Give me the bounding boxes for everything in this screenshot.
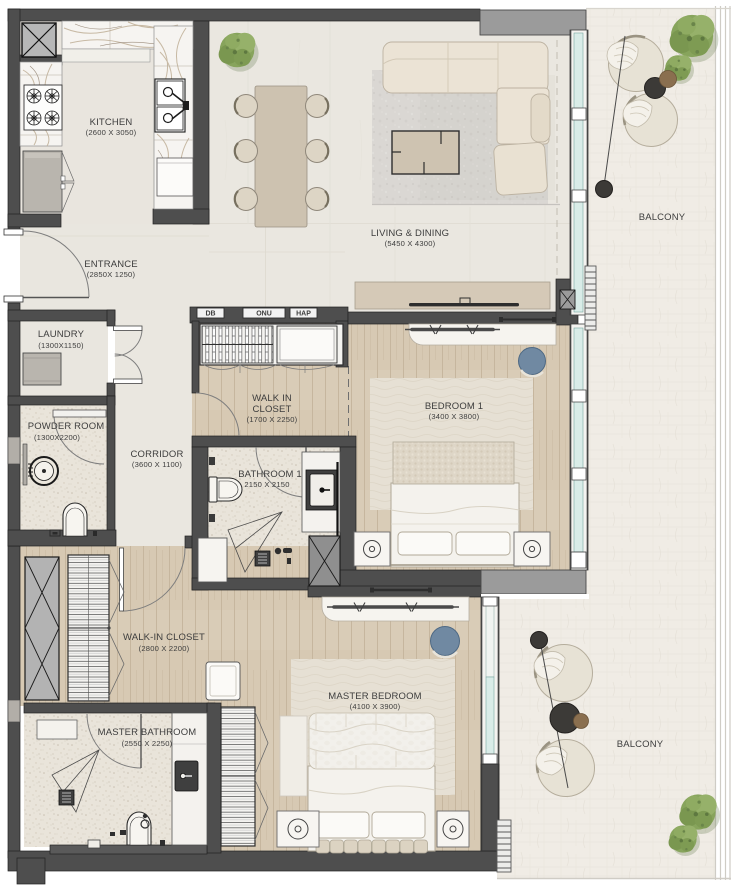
svg-text:WALK IN: WALK IN <box>252 393 292 404</box>
svg-text:(3400 X 3800): (3400 X 3800) <box>429 412 480 421</box>
svg-text:MASTER BATHROOM: MASTER BATHROOM <box>98 727 197 738</box>
svg-text:ONU: ONU <box>256 311 272 318</box>
svg-text:HAP: HAP <box>296 311 311 318</box>
svg-text:(1300X1150): (1300X1150) <box>38 341 84 350</box>
svg-text:CORRIDOR: CORRIDOR <box>131 449 184 460</box>
svg-text:DB: DB <box>205 311 215 318</box>
svg-text:(1700 X 2250): (1700 X 2250) <box>247 415 298 424</box>
svg-text:WALK-IN CLOSET: WALK-IN CLOSET <box>123 632 205 643</box>
svg-text:LAUNDRY: LAUNDRY <box>38 329 85 340</box>
svg-text:BEDROOM 1: BEDROOM 1 <box>425 401 483 412</box>
svg-text:(2850X 1250): (2850X 1250) <box>87 270 136 279</box>
svg-text:(2600 X 3050): (2600 X 3050) <box>86 128 137 137</box>
svg-text:(2800 X 2200): (2800 X 2200) <box>139 644 190 653</box>
svg-text:2150 X 2150: 2150 X 2150 <box>244 480 289 489</box>
svg-text:(3600 X 1100): (3600 X 1100) <box>132 460 182 469</box>
svg-text:POWDER ROOM: POWDER ROOM <box>28 421 105 432</box>
svg-text:BALCONY: BALCONY <box>617 739 664 750</box>
svg-text:CLOSET: CLOSET <box>253 404 292 415</box>
svg-text:MASTER BEDROOM: MASTER BEDROOM <box>328 691 421 702</box>
svg-text:ENTRANCE: ENTRANCE <box>84 259 137 270</box>
svg-text:(2550 X 2250): (2550 X 2250) <box>122 739 173 748</box>
svg-text:KITCHEN: KITCHEN <box>90 117 133 128</box>
svg-text:(4100 X 3900): (4100 X 3900) <box>350 702 401 711</box>
svg-text:(5450 X 4300): (5450 X 4300) <box>385 239 436 248</box>
svg-text:(1300X2200): (1300X2200) <box>34 433 80 442</box>
svg-text:BATHROOM 1: BATHROOM 1 <box>238 469 302 480</box>
svg-text:LIVING & DINING: LIVING & DINING <box>371 228 449 239</box>
svg-text:BALCONY: BALCONY <box>639 212 686 223</box>
